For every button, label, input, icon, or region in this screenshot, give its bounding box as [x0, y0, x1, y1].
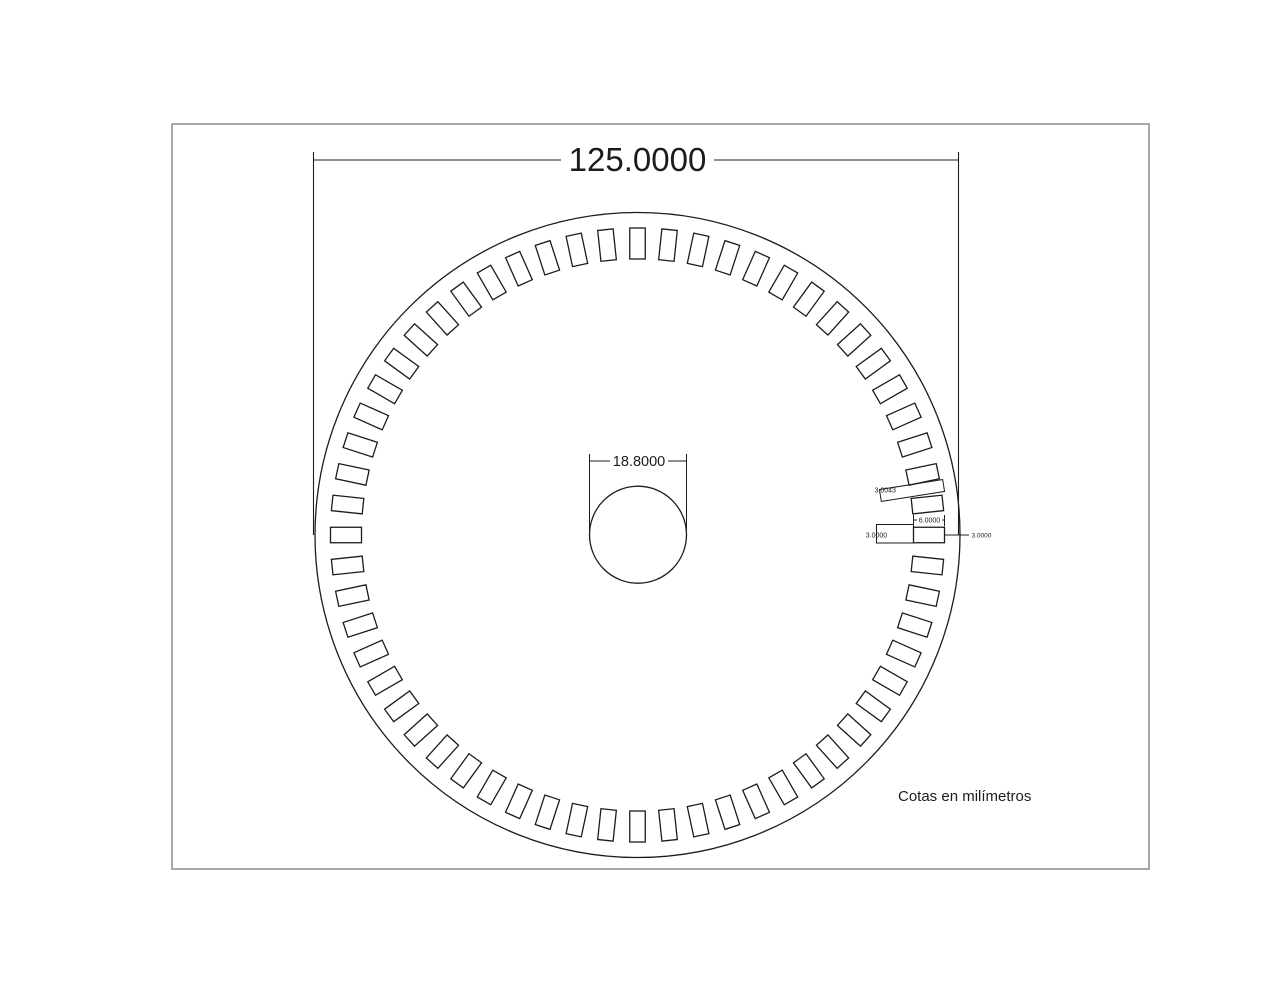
encoder-slot — [837, 714, 870, 746]
encoder-slot — [535, 241, 559, 275]
encoder-slot — [354, 640, 389, 667]
dim-slot-width-label: 3.0000 — [866, 533, 888, 540]
dim-hole-diameter: 18.8000 — [590, 454, 687, 533]
encoder-slot — [715, 795, 739, 829]
encoder-slot — [385, 348, 419, 379]
encoder-slot — [404, 714, 437, 746]
encoder-slot — [715, 241, 739, 275]
encoder-slot — [898, 433, 932, 457]
encoder-slot — [630, 228, 646, 259]
encoder-slot — [856, 691, 890, 722]
encoder-slot — [598, 229, 617, 261]
encoder-slot — [451, 282, 482, 316]
encoder-slot — [535, 795, 559, 829]
encoder-slot — [687, 233, 709, 267]
encoder-slot — [336, 464, 370, 486]
dim-slot-gap-label: 3.0043 — [875, 488, 897, 495]
encoder-slot — [331, 495, 363, 514]
encoder-slots — [331, 228, 945, 842]
encoder-slot — [911, 556, 943, 575]
encoder-slot — [385, 691, 419, 722]
encoder-slot — [630, 811, 646, 842]
encoder-slot — [477, 770, 506, 805]
dim-slot-length-label: 6.0000 — [919, 518, 941, 525]
encoder-slot — [404, 324, 437, 356]
encoder-slot — [856, 348, 890, 379]
encoder-slot — [837, 324, 870, 356]
encoder-slot — [477, 265, 506, 300]
shaft-hole — [590, 486, 687, 583]
units-note: Cotas en milímetros — [898, 788, 1031, 805]
encoder-slot — [659, 809, 678, 841]
encoder-slot — [566, 233, 588, 267]
dim-slot-outer-margin-label: 3.0000 — [972, 533, 992, 540]
dim-slot-gap: 3.0043 — [875, 480, 945, 502]
encoder-slot — [426, 735, 458, 768]
disc-outline — [315, 213, 960, 858]
dim-outer-diameter-label: 125.0000 — [569, 141, 707, 178]
encoder-slot — [451, 754, 482, 788]
encoder-slot — [598, 809, 617, 841]
encoder-slot — [566, 803, 588, 837]
encoder-slot — [816, 302, 848, 335]
encoder-slot — [368, 666, 403, 695]
encoder-slot — [873, 375, 908, 404]
encoder-slot — [506, 251, 533, 286]
dim-outer-diameter: 125.0000 — [314, 141, 959, 535]
encoder-slot — [793, 282, 824, 316]
dim-slot-width: 3.0000 — [866, 525, 914, 544]
encoder-slot — [506, 784, 533, 819]
encoder-slot — [368, 375, 403, 404]
drawing-frame — [172, 124, 1149, 869]
encoder-slot — [659, 229, 678, 261]
encoder-slot — [769, 770, 798, 805]
encoder-slot — [343, 433, 377, 457]
dim-slot-length: 6.0000 — [914, 515, 945, 526]
encoder-slot — [906, 464, 940, 486]
encoder-slot — [687, 803, 709, 837]
encoder-slot — [331, 527, 362, 543]
dim-hole-diameter-label: 18.8000 — [613, 454, 665, 470]
encoder-slot — [769, 265, 798, 300]
encoder-slot — [426, 302, 458, 335]
encoder-slot — [914, 527, 945, 543]
encoder-slot — [886, 403, 921, 430]
encoder-slot — [816, 735, 848, 768]
encoder-slot — [743, 784, 770, 819]
encoder-slot — [886, 640, 921, 667]
encoder-slot — [911, 495, 943, 514]
engineering-drawing: 125.0000 18.8000 3.0043 6.0000 3.0000 3.… — [0, 0, 1280, 989]
dim-slot-outer-margin: 3.0000 — [945, 533, 992, 540]
encoder-slot — [336, 585, 370, 607]
encoder-slot — [793, 754, 824, 788]
encoder-slot — [873, 666, 908, 695]
encoder-slot — [906, 585, 940, 607]
encoder-slot — [354, 403, 389, 430]
encoder-slot — [898, 613, 932, 637]
encoder-slot — [331, 556, 363, 575]
encoder-slot — [743, 251, 770, 286]
encoder-slot — [343, 613, 377, 637]
